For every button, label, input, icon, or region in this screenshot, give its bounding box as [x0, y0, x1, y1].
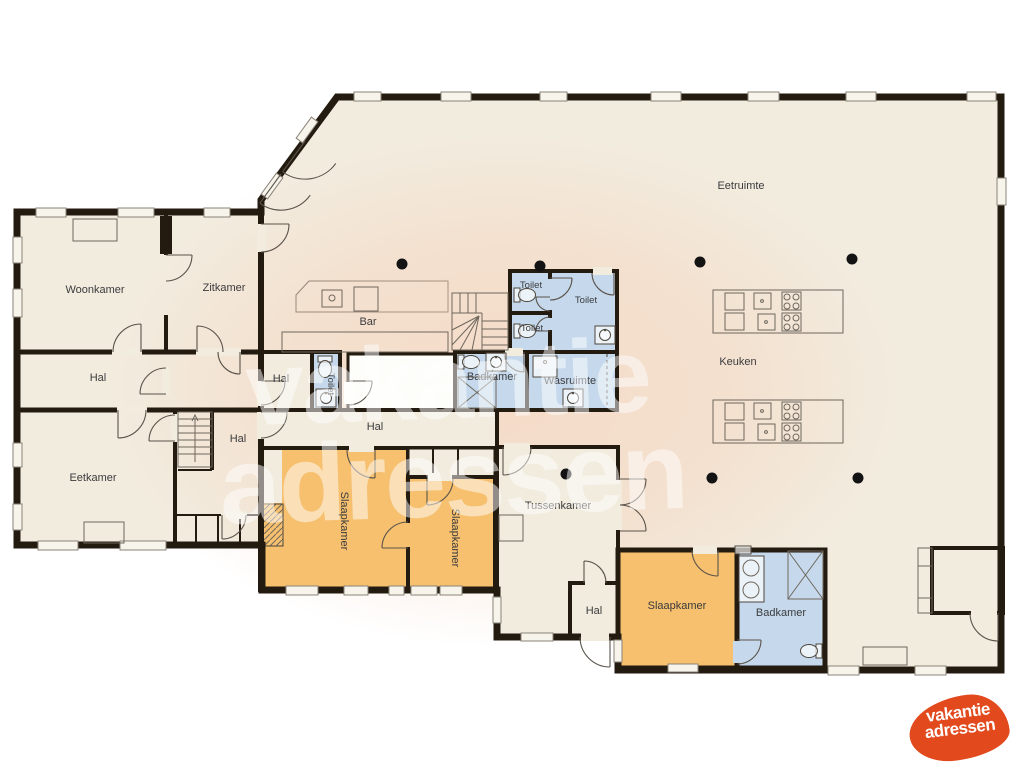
room-label-eetruimte: Eetruimte [717, 180, 764, 192]
room-label-hal-1: Hal [90, 372, 107, 384]
room-pantry [932, 548, 1003, 613]
room-label-eetkamer: Eetkamer [69, 472, 116, 484]
room-label-woonkamer: Woonkamer [65, 284, 124, 296]
pillar-dot [707, 473, 718, 484]
room-label-keuken: Keuken [719, 356, 756, 368]
watermark: vakantie adressen [214, 316, 688, 548]
vakantieadressen-logo: vakantie adressen [899, 692, 1019, 766]
floorplan-page: Woonkamer Zitkamer Eetruimte Bar Keuken … [0, 0, 1024, 768]
floorplan-drawing: Woonkamer Zitkamer Eetruimte Bar Keuken … [0, 0, 1024, 768]
pillar-dot [853, 473, 864, 484]
room-label-toilet-1: Toilet [520, 280, 543, 291]
room-label-badkamer-2: Badkamer [756, 607, 806, 619]
room-label-slaapkamer-3: Slaapkamer [648, 600, 707, 612]
toilet-icon [801, 644, 823, 658]
pillar-dot [397, 259, 408, 270]
pillar-dot [847, 254, 858, 265]
room-label-hal-5: Hal [586, 605, 603, 617]
room-label-toilet-3: Toilet [575, 295, 598, 306]
pillar-dot [535, 261, 546, 272]
watermark-line2: adressen [217, 409, 688, 548]
room-label-zitkamer: Zitkamer [203, 282, 246, 294]
pillar-dot [695, 257, 706, 268]
